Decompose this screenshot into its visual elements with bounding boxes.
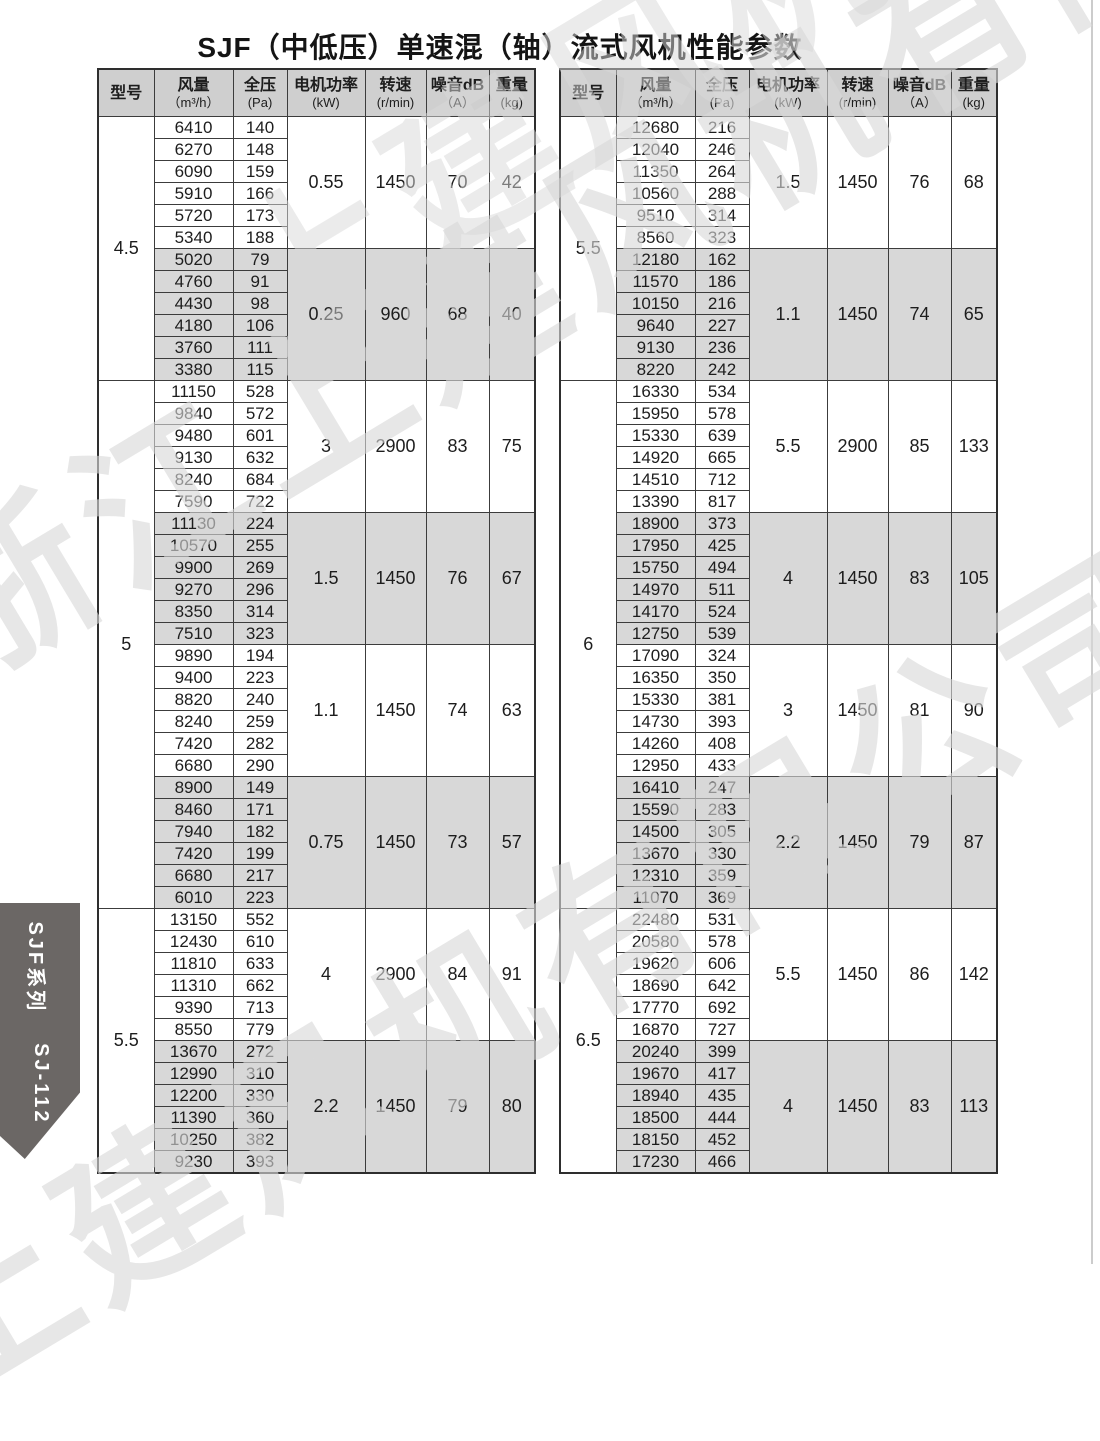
pressure-cell: 288: [695, 183, 749, 205]
pressure-cell: 296: [233, 579, 287, 601]
header-label: 风量: [155, 76, 233, 95]
tables-container: 型号风量（m³/h）全压(Pa)电机功率(kW)转速(r/min)噪音dB（A）…: [97, 68, 998, 1174]
weight-cell: 68: [951, 117, 997, 249]
noise-cell: 83: [888, 1041, 951, 1174]
weight-cell: 80: [489, 1041, 535, 1174]
pressure-cell: 642: [695, 975, 749, 997]
flow-cell: 11570: [616, 271, 695, 293]
speed-cell: 1450: [827, 249, 888, 381]
flow-cell: 19670: [616, 1063, 695, 1085]
flow-cell: 9130: [154, 447, 233, 469]
pressure-cell: 91: [233, 271, 287, 293]
flow-cell: 14920: [616, 447, 695, 469]
pressure-cell: 382: [233, 1129, 287, 1151]
pressure-cell: 433: [695, 755, 749, 777]
flow-cell: 15590: [616, 799, 695, 821]
header-label: 转速: [828, 76, 888, 95]
header-cell: 噪音dB（A）: [888, 69, 951, 117]
flow-cell: 11130: [154, 513, 233, 535]
pressure-cell: 240: [233, 689, 287, 711]
flow-cell: 5020: [154, 249, 233, 271]
flow-cell: 6090: [154, 161, 233, 183]
noise-cell: 85: [888, 381, 951, 513]
flow-cell: 3380: [154, 359, 233, 381]
flow-cell: 8560: [616, 227, 695, 249]
flow-cell: 9890: [154, 645, 233, 667]
pressure-cell: 665: [695, 447, 749, 469]
table-row: 98901941.114507463: [98, 645, 535, 667]
header-unit: (kW): [750, 95, 827, 110]
pressure-cell: 227: [695, 315, 749, 337]
flow-cell: 9270: [154, 579, 233, 601]
pressure-cell: 305: [695, 821, 749, 843]
header-label: 型号: [561, 84, 616, 103]
model-cell: 6.5: [560, 909, 616, 1174]
flow-cell: 9900: [154, 557, 233, 579]
weight-cell: 91: [489, 909, 535, 1041]
weight-cell: 133: [951, 381, 997, 513]
speed-cell: 1450: [827, 645, 888, 777]
speed-cell: 1450: [827, 1041, 888, 1174]
pressure-cell: 290: [233, 755, 287, 777]
pressure-cell: 323: [233, 623, 287, 645]
flow-cell: 6680: [154, 865, 233, 887]
speed-cell: 2900: [365, 909, 426, 1041]
flow-cell: 12430: [154, 931, 233, 953]
pressure-cell: 408: [695, 733, 749, 755]
power-cell: 2.2: [749, 777, 827, 909]
page-title: SJF（中低压）单速混（轴）流式风机性能参数: [0, 26, 1000, 66]
flow-cell: 13670: [154, 1041, 233, 1063]
flow-cell: 11310: [154, 975, 233, 997]
weight-cell: 63: [489, 645, 535, 777]
pressure-cell: 236: [695, 337, 749, 359]
flow-cell: 18690: [616, 975, 695, 997]
flow-cell: 7940: [154, 821, 233, 843]
header-label: 全压: [696, 76, 749, 95]
speed-cell: 1450: [365, 645, 426, 777]
pressure-cell: 324: [695, 645, 749, 667]
header-cell: 电机功率(kW): [287, 69, 365, 117]
flow-cell: 8550: [154, 1019, 233, 1041]
flow-cell: 11810: [154, 953, 233, 975]
pressure-cell: 98: [233, 293, 287, 315]
pressure-cell: 393: [695, 711, 749, 733]
noise-cell: 79: [426, 1041, 489, 1174]
table-row: 189003734145083105: [560, 513, 997, 535]
pressure-cell: 712: [695, 469, 749, 491]
flow-cell: 4180: [154, 315, 233, 337]
noise-cell: 73: [426, 777, 489, 909]
noise-cell: 70: [426, 117, 489, 249]
flow-cell: 8900: [154, 777, 233, 799]
pressure-cell: 572: [233, 403, 287, 425]
pressure-cell: 173: [233, 205, 287, 227]
flow-cell: 17770: [616, 997, 695, 1019]
noise-cell: 81: [888, 645, 951, 777]
flow-cell: 20240: [616, 1041, 695, 1063]
series-tab: SJF系列 SJ-112: [0, 903, 80, 1159]
power-cell: 0.25: [287, 249, 365, 381]
pressure-cell: 528: [233, 381, 287, 403]
pressure-cell: 186: [695, 271, 749, 293]
pressure-cell: 162: [695, 249, 749, 271]
table-row: 111302241.514507667: [98, 513, 535, 535]
flow-cell: 4430: [154, 293, 233, 315]
model-cell: 5: [98, 381, 154, 909]
noise-cell: 68: [426, 249, 489, 381]
left-performance-table: 型号风量（m³/h）全压(Pa)电机功率(kW)转速(r/min)噪音dB（A）…: [97, 68, 536, 1174]
power-cell: 5.5: [749, 909, 827, 1041]
pressure-cell: 722: [233, 491, 287, 513]
flow-cell: 16410: [616, 777, 695, 799]
header-label: 重量: [952, 76, 997, 95]
header-cell: 型号: [560, 69, 616, 117]
header-cell: 风量（m³/h）: [154, 69, 233, 117]
speed-cell: 1450: [365, 1041, 426, 1174]
pressure-cell: 425: [695, 535, 749, 557]
table-row: 511150528329008375: [98, 381, 535, 403]
header-cell: 转速(r/min): [365, 69, 426, 117]
table-row: 5.513150552429008491: [98, 909, 535, 931]
flow-cell: 20580: [616, 931, 695, 953]
flow-cell: 13150: [154, 909, 233, 931]
pressure-cell: 330: [233, 1085, 287, 1107]
pressure-cell: 188: [233, 227, 287, 249]
noise-cell: 74: [426, 645, 489, 777]
pressure-cell: 246: [695, 139, 749, 161]
pressure-cell: 182: [233, 821, 287, 843]
flow-cell: 22480: [616, 909, 695, 931]
table-row: 164102472.214507987: [560, 777, 997, 799]
weight-cell: 142: [951, 909, 997, 1041]
power-cell: 0.75: [287, 777, 365, 909]
header-label: 噪音dB: [427, 76, 489, 95]
pressure-cell: 255: [233, 535, 287, 557]
pressure-cell: 159: [233, 161, 287, 183]
flow-cell: 18500: [616, 1107, 695, 1129]
header-cell: 重量(kg): [489, 69, 535, 117]
pressure-cell: 524: [695, 601, 749, 623]
header-unit: (r/min): [366, 95, 426, 110]
pressure-cell: 662: [233, 975, 287, 997]
pressure-cell: 511: [695, 579, 749, 601]
flow-cell: 10570: [154, 535, 233, 557]
pressure-cell: 111: [233, 337, 287, 359]
header-label: 电机功率: [750, 76, 827, 95]
table-row: 6.5224805315.5145086142: [560, 909, 997, 931]
header-cell: 风量（m³/h）: [616, 69, 695, 117]
flow-cell: 14260: [616, 733, 695, 755]
flow-cell: 8350: [154, 601, 233, 623]
noise-cell: 84: [426, 909, 489, 1041]
weight-cell: 42: [489, 117, 535, 249]
flow-cell: 14970: [616, 579, 695, 601]
pressure-cell: 217: [233, 865, 287, 887]
header-unit: (r/min): [828, 95, 888, 110]
header-cell: 重量(kg): [951, 69, 997, 117]
page-edge-line: [1091, 0, 1093, 1264]
flow-cell: 9390: [154, 997, 233, 1019]
pressure-cell: 727: [695, 1019, 749, 1041]
flow-cell: 8220: [616, 359, 695, 381]
flow-cell: 15330: [616, 689, 695, 711]
flow-cell: 11070: [616, 887, 695, 909]
flow-cell: 9640: [616, 315, 695, 337]
pressure-cell: 360: [233, 1107, 287, 1129]
pressure-cell: 171: [233, 799, 287, 821]
pressure-cell: 633: [233, 953, 287, 975]
weight-cell: 113: [951, 1041, 997, 1174]
pressure-cell: 310: [233, 1063, 287, 1085]
table-row: 4.564101400.5514507042: [98, 117, 535, 139]
speed-cell: 1450: [365, 117, 426, 249]
pressure-cell: 713: [233, 997, 287, 1019]
speed-cell: 2900: [365, 381, 426, 513]
flow-cell: 15330: [616, 425, 695, 447]
speed-cell: 1450: [827, 909, 888, 1041]
flow-cell: 17230: [616, 1151, 695, 1174]
flow-cell: 9840: [154, 403, 233, 425]
speed-cell: 1450: [827, 513, 888, 645]
flow-cell: 6270: [154, 139, 233, 161]
flow-cell: 6680: [154, 755, 233, 777]
power-cell: 3: [749, 645, 827, 777]
flow-cell: 4760: [154, 271, 233, 293]
table-row: 202403994145083113: [560, 1041, 997, 1063]
header-label: 电机功率: [288, 76, 365, 95]
pressure-cell: 601: [233, 425, 287, 447]
noise-cell: 83: [426, 381, 489, 513]
flow-cell: 14170: [616, 601, 695, 623]
speed-cell: 1450: [365, 777, 426, 909]
flow-cell: 8240: [154, 469, 233, 491]
flow-cell: 12180: [616, 249, 695, 271]
flow-cell: 11350: [616, 161, 695, 183]
flow-cell: 11390: [154, 1107, 233, 1129]
flow-cell: 10560: [616, 183, 695, 205]
flow-cell: 9230: [154, 1151, 233, 1174]
flow-cell: 12310: [616, 865, 695, 887]
header-unit: （A）: [427, 95, 489, 110]
power-cell: 1.1: [749, 249, 827, 381]
pressure-cell: 684: [233, 469, 287, 491]
pressure-cell: 223: [233, 887, 287, 909]
speed-cell: 2900: [827, 381, 888, 513]
pressure-cell: 259: [233, 711, 287, 733]
flow-cell: 18940: [616, 1085, 695, 1107]
pressure-cell: 79: [233, 249, 287, 271]
header-cell: 电机功率(kW): [749, 69, 827, 117]
flow-cell: 18150: [616, 1129, 695, 1151]
flow-cell: 19620: [616, 953, 695, 975]
pressure-cell: 817: [695, 491, 749, 513]
pressure-cell: 373: [695, 513, 749, 535]
noise-cell: 83: [888, 513, 951, 645]
noise-cell: 76: [426, 513, 489, 645]
table-row: 6163305345.5290085133: [560, 381, 997, 403]
pressure-cell: 223: [233, 667, 287, 689]
flow-cell: 17950: [616, 535, 695, 557]
weight-cell: 75: [489, 381, 535, 513]
pressure-cell: 534: [695, 381, 749, 403]
flow-cell: 6410: [154, 117, 233, 139]
flow-cell: 14500: [616, 821, 695, 843]
speed-cell: 960: [365, 249, 426, 381]
flow-cell: 8820: [154, 689, 233, 711]
flow-cell: 6010: [154, 887, 233, 909]
flow-cell: 5910: [154, 183, 233, 205]
header-unit: (Pa): [234, 95, 287, 110]
pressure-cell: 435: [695, 1085, 749, 1107]
pressure-cell: 779: [233, 1019, 287, 1041]
speed-cell: 1450: [827, 777, 888, 909]
weight-cell: 90: [951, 645, 997, 777]
header-label: 转速: [366, 76, 426, 95]
flow-cell: 11150: [154, 381, 233, 403]
weight-cell: 40: [489, 249, 535, 381]
pressure-cell: 106: [233, 315, 287, 337]
weight-cell: 65: [951, 249, 997, 381]
pressure-cell: 199: [233, 843, 287, 865]
pressure-cell: 166: [233, 183, 287, 205]
flow-cell: 13670: [616, 843, 695, 865]
pressure-cell: 578: [695, 403, 749, 425]
table-row: 121801621.114507465: [560, 249, 997, 271]
pressure-cell: 444: [695, 1107, 749, 1129]
pressure-cell: 393: [233, 1151, 287, 1174]
flow-cell: 10150: [616, 293, 695, 315]
header-cell: 全压(Pa): [233, 69, 287, 117]
flow-cell: 12990: [154, 1063, 233, 1085]
header-label: 噪音dB: [889, 76, 951, 95]
header-unit: (Pa): [696, 95, 749, 110]
flow-cell: 8240: [154, 711, 233, 733]
power-cell: 1.1: [287, 645, 365, 777]
flow-cell: 16330: [616, 381, 695, 403]
flow-cell: 13390: [616, 491, 695, 513]
pressure-cell: 314: [695, 205, 749, 227]
flow-cell: 12680: [616, 117, 695, 139]
header-cell: 全压(Pa): [695, 69, 749, 117]
model-cell: 5.5: [560, 117, 616, 381]
pressure-cell: 417: [695, 1063, 749, 1085]
header-cell: 型号: [98, 69, 154, 117]
power-cell: 0.55: [287, 117, 365, 249]
model-cell: 5.5: [98, 909, 154, 1174]
pressure-cell: 247: [695, 777, 749, 799]
pressure-cell: 452: [695, 1129, 749, 1151]
flow-cell: 9510: [616, 205, 695, 227]
flow-cell: 7590: [154, 491, 233, 513]
header-unit: （A）: [889, 95, 951, 110]
speed-cell: 1450: [827, 117, 888, 249]
header-unit: （m³/h）: [155, 95, 233, 110]
flow-cell: 17090: [616, 645, 695, 667]
power-cell: 4: [287, 909, 365, 1041]
weight-cell: 57: [489, 777, 535, 909]
flow-cell: 14510: [616, 469, 695, 491]
pressure-cell: 216: [695, 117, 749, 139]
series-tab-model-label: SJ-112: [28, 1043, 52, 1124]
power-cell: 1.5: [287, 513, 365, 645]
flow-cell: 12040: [616, 139, 695, 161]
pressure-cell: 359: [695, 865, 749, 887]
noise-cell: 76: [888, 117, 951, 249]
pressure-cell: 399: [695, 1041, 749, 1063]
pressure-cell: 381: [695, 689, 749, 711]
pressure-cell: 692: [695, 997, 749, 1019]
power-cell: 5.5: [749, 381, 827, 513]
flow-cell: 3760: [154, 337, 233, 359]
pressure-cell: 578: [695, 931, 749, 953]
flow-cell: 12200: [154, 1085, 233, 1107]
flow-cell: 9130: [616, 337, 695, 359]
table-row: 5020790.259606840: [98, 249, 535, 271]
flow-cell: 14730: [616, 711, 695, 733]
power-cell: 3: [287, 381, 365, 513]
header-label: 型号: [99, 84, 154, 103]
model-cell: 4.5: [98, 117, 154, 381]
pressure-cell: 216: [695, 293, 749, 315]
pressure-cell: 639: [695, 425, 749, 447]
pressure-cell: 314: [233, 601, 287, 623]
noise-cell: 86: [888, 909, 951, 1041]
pressure-cell: 531: [695, 909, 749, 931]
noise-cell: 74: [888, 249, 951, 381]
pressure-cell: 552: [233, 909, 287, 931]
right-performance-table: 型号风量（m³/h）全压(Pa)电机功率(kW)转速(r/min)噪音dB（A）…: [559, 68, 998, 1174]
pressure-cell: 539: [695, 623, 749, 645]
table-row: 17090324314508190: [560, 645, 997, 667]
header-label: 重量: [490, 76, 535, 95]
pressure-cell: 242: [695, 359, 749, 381]
pressure-cell: 610: [233, 931, 287, 953]
flow-cell: 15950: [616, 403, 695, 425]
header-unit: (kg): [952, 95, 997, 110]
header-cell: 转速(r/min): [827, 69, 888, 117]
pressure-cell: 350: [695, 667, 749, 689]
flow-cell: 5340: [154, 227, 233, 249]
flow-cell: 9400: [154, 667, 233, 689]
power-cell: 1.5: [749, 117, 827, 249]
pressure-cell: 466: [695, 1151, 749, 1174]
weight-cell: 87: [951, 777, 997, 909]
pressure-cell: 224: [233, 513, 287, 535]
pressure-cell: 148: [233, 139, 287, 161]
weight-cell: 67: [489, 513, 535, 645]
pressure-cell: 494: [695, 557, 749, 579]
pressure-cell: 330: [695, 843, 749, 865]
flow-cell: 15750: [616, 557, 695, 579]
pressure-cell: 323: [695, 227, 749, 249]
series-tab-series-label: SJF系列: [28, 921, 52, 1013]
noise-cell: 79: [888, 777, 951, 909]
flow-cell: 7420: [154, 843, 233, 865]
model-cell: 6: [560, 381, 616, 909]
power-cell: 4: [749, 513, 827, 645]
pressure-cell: 264: [695, 161, 749, 183]
flow-cell: 8460: [154, 799, 233, 821]
table-row: 89001490.7514507357: [98, 777, 535, 799]
pressure-cell: 282: [233, 733, 287, 755]
flow-cell: 10250: [154, 1129, 233, 1151]
power-cell: 4: [749, 1041, 827, 1174]
pressure-cell: 140: [233, 117, 287, 139]
pressure-cell: 369: [695, 887, 749, 909]
pressure-cell: 115: [233, 359, 287, 381]
header-label: 全压: [234, 76, 287, 95]
